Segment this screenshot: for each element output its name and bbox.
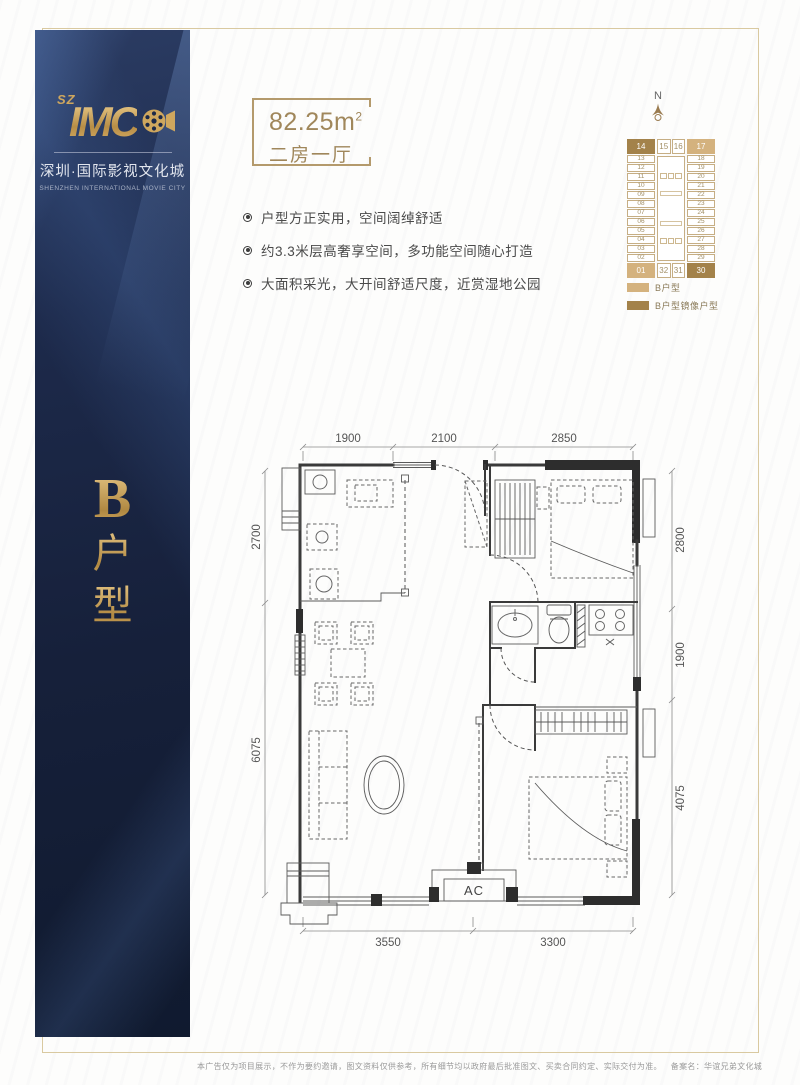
logo-divider (54, 152, 172, 153)
stack-unit-cell: 20 (687, 173, 715, 181)
stack-unit-cell: 14 (627, 139, 655, 154)
stack-unit-cell: 31 (672, 263, 686, 278)
stack-middle-column: 1516 3231 (657, 139, 685, 278)
feature-item: 约3.3米层高奢享空间，多功能空间随心打造 (243, 240, 541, 260)
stack-corridor (657, 156, 685, 261)
unit-char-2: 型 (35, 580, 190, 632)
footer-disclaimer: 本广告仅为项目展示，不作为要约邀请，图文资料仅供参考，所有细节均以政府最后批准图… (197, 1061, 767, 1072)
stack-unit-cell: 19 (687, 164, 715, 172)
stack-unit-cell: 26 (687, 227, 715, 235)
stack-unit-cell: 30 (687, 263, 715, 278)
unit-summary-box: 82.25m2 二房一厅 (252, 98, 370, 166)
stack-legend: B户型B户型镜像户型 (627, 281, 719, 317)
stack-unit-cell: 03 (627, 245, 655, 253)
feature-item: 户型方正实用，空间阔绰舒适 (243, 207, 541, 227)
stack-core-cells (660, 238, 682, 244)
feature-text: 大面积采光，大开间舒适尺度，近赏湿地公园 (261, 273, 541, 293)
brand-sidebar: SZ IMC 深圳·国际影视文化城 SHENZHEN INTERNATIONAL… (35, 30, 190, 1037)
flyer-page: SZ IMC 深圳·国际影视文化城 SHENZHEN INTERNATIONAL… (0, 0, 800, 1085)
feature-item: 大面积采光，大开间舒适尺度，近赏湿地公园 (243, 273, 541, 293)
bullet-icon (243, 213, 252, 222)
dim-label: 6075 (251, 737, 263, 763)
legend-label: B户型镜像户型 (655, 299, 719, 312)
stack-unit-cell: 10 (627, 182, 655, 190)
ac-unit: AC (429, 862, 518, 902)
stack-unit-cell: 02 (627, 254, 655, 262)
furniture (305, 470, 633, 877)
dim-label: 2800 (675, 527, 687, 553)
stack-unit-cell: 04 (627, 236, 655, 244)
dim-label: 3550 (375, 937, 401, 949)
stack-unit-cell: 27 (687, 236, 715, 244)
logo-imc-text: IMC (69, 98, 137, 146)
interior-walls (300, 465, 637, 870)
unit-letter: B (35, 470, 190, 528)
ac-label: AC (464, 883, 484, 898)
stack-unit-cell: 01 (627, 263, 655, 278)
unit-area-sup: 2 (355, 110, 362, 124)
disclaimer-text: 本广告仅为项目展示，不作为要约邀请，图文资料仅供参考，所有细节均以政府最后批准图… (197, 1062, 662, 1071)
stack-mid-bottom: 3231 (657, 263, 685, 278)
stack-core-band (660, 221, 682, 226)
logo-row: SZ IMC (35, 92, 190, 150)
dim-label: 2100 (431, 433, 457, 445)
fixtures (492, 605, 633, 647)
unit-layout: 二房一厅 (269, 140, 370, 167)
dim-label: 3300 (540, 937, 566, 949)
stack-core-band (660, 191, 682, 196)
stack-unit-cell: 18 (687, 155, 715, 163)
unit-char-1: 户 (35, 528, 190, 580)
stack-unit-cell: 29 (687, 254, 715, 262)
floor-plan: 1900 2100 2850 2700 6075 2800 1900 4075 (243, 423, 705, 963)
stack-unit-cell: 05 (627, 227, 655, 235)
unit-area: 82.25m2 (269, 108, 370, 137)
unit-stack-diagram: 1413121110090807060504030201 1516 3231 1… (627, 139, 715, 278)
dim-label: 2700 (251, 524, 263, 550)
compass-north-label: N (647, 90, 669, 102)
dim-label: 1900 (335, 433, 361, 445)
stack-unit-cell: 22 (687, 191, 715, 199)
stack-unit-cell: 07 (627, 209, 655, 217)
legend-swatch (627, 283, 649, 292)
stack-unit-cell: 16 (672, 139, 686, 154)
stack-unit-cell: 08 (627, 200, 655, 208)
compass: N (647, 90, 669, 128)
dim-label: 1900 (675, 642, 687, 668)
brand-name-en: SHENZHEN INTERNATIONAL MOVIE CITY (35, 185, 190, 192)
stack-core-cells (660, 173, 682, 179)
stack-mid-top: 1516 (657, 139, 685, 154)
floor-plan-svg: 1900 2100 2850 2700 6075 2800 1900 4075 (243, 423, 705, 963)
compass-arrow-icon (649, 103, 667, 123)
feature-list: 户型方正实用，空间阔绰舒适 约3.3米层高奢享空间，多功能空间随心打造 大面积采… (243, 207, 541, 306)
stack-unit-cell: 24 (687, 209, 715, 217)
stack-unit-cell: 32 (657, 263, 671, 278)
bullet-icon (243, 246, 252, 255)
stack-unit-cell: 17 (687, 139, 715, 154)
brand-logo: SZ IMC 深圳·国际影视文化城 SHENZHEN INTERNATIONAL… (35, 92, 190, 192)
stack-unit-cell: 28 (687, 245, 715, 253)
film-camera-icon (140, 104, 176, 138)
feature-text: 户型方正实用，空间阔绰舒适 (261, 207, 443, 227)
legend-swatch (627, 301, 649, 310)
stack-unit-cell: 13 (627, 155, 655, 163)
stack-left-column: 1413121110090807060504030201 (627, 139, 655, 278)
dim-label: 4075 (675, 785, 687, 811)
brand-name-cn: 深圳·国际影视文化城 (35, 160, 190, 181)
stack-unit-cell: 15 (657, 139, 671, 154)
legend-row: B户型镜像户型 (627, 299, 719, 312)
stack-unit-cell: 23 (687, 200, 715, 208)
bullet-icon (243, 279, 252, 288)
stack-unit-cell: 12 (627, 164, 655, 172)
stack-right-column: 1718192021222324252627282930 (687, 139, 715, 278)
unit-type-vertical-label: B 户 型 (35, 470, 190, 632)
stack-unit-cell: 21 (687, 182, 715, 190)
legend-label: B户型 (655, 281, 681, 294)
stack-unit-cell: 09 (627, 191, 655, 199)
filing-name: 备案名：华谊兄弟文化城 (671, 1062, 762, 1071)
feature-text: 约3.3米层高奢享空间，多功能空间随心打造 (261, 240, 533, 260)
legend-row: B户型 (627, 281, 719, 294)
stack-unit-cell: 25 (687, 218, 715, 226)
unit-area-value: 82.25m (269, 108, 355, 136)
stack-unit-cell: 11 (627, 173, 655, 181)
dim-label: 2850 (551, 433, 577, 445)
stack-unit-cell: 06 (627, 218, 655, 226)
